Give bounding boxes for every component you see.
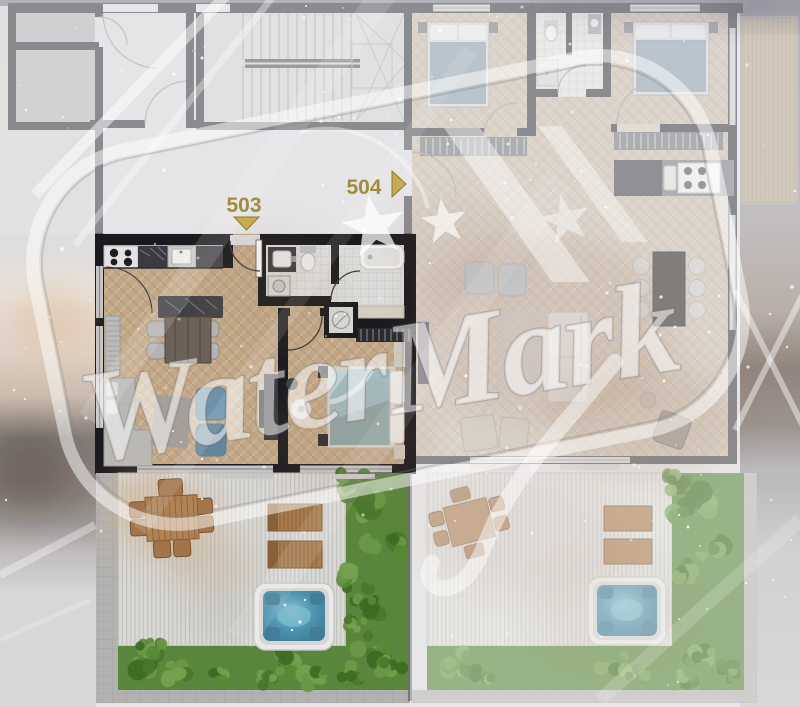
svg-text:504: 504: [346, 176, 381, 199]
svg-text:503: 503: [226, 194, 261, 217]
